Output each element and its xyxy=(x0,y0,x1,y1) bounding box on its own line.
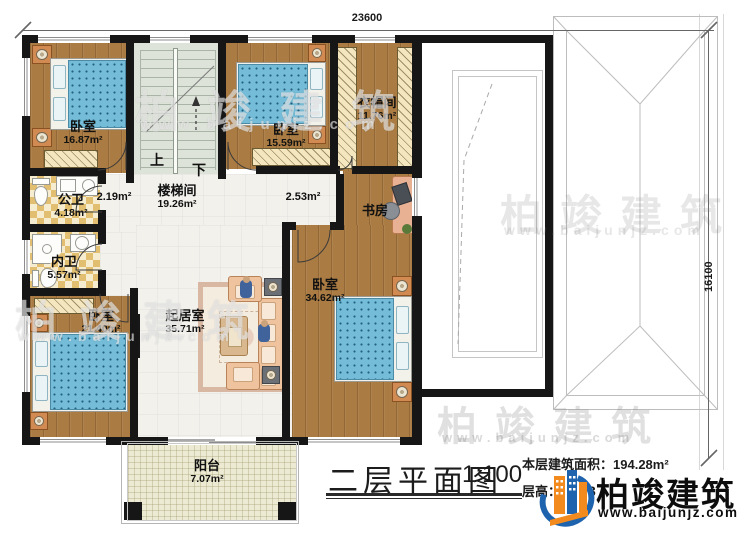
stair-down-label: 下 xyxy=(192,160,206,180)
room-area: 34.62m² xyxy=(305,293,344,305)
stair-up-label: 上 xyxy=(150,150,164,170)
roof-void-outline xyxy=(453,71,543,358)
room-label-bedroom4: 卧室 34.62m² xyxy=(305,278,344,304)
room-label-balcony: 阳台 7.07m² xyxy=(190,459,223,485)
room-area: 4.18m² xyxy=(54,208,87,220)
room-area: 11.76m² xyxy=(357,111,396,123)
room-label-bedroom3: 卧室 21.40m² xyxy=(81,309,120,335)
room-name: 衣帽间 xyxy=(357,96,396,111)
room-area: 19.26m² xyxy=(157,199,196,211)
room-name: 楼梯间 xyxy=(157,184,196,199)
room-label-private-bath: 内卫 5.57m² xyxy=(47,255,80,281)
room-name: 卧室 xyxy=(81,309,120,324)
room-label-bedroom1: 卧室 16.87m² xyxy=(63,120,102,146)
brand-logo-icon xyxy=(538,464,598,532)
dimension-lines xyxy=(15,22,717,466)
room-name: 起居室 xyxy=(165,309,204,324)
stair-break-and-arrow xyxy=(146,66,214,132)
room-name: 卧室 xyxy=(305,278,344,293)
plan-scale: 1:100 xyxy=(462,461,522,489)
dimension-width: 23600 xyxy=(352,12,383,24)
room-label-stairwell: 楼梯间 19.26m² xyxy=(157,184,196,210)
room-name: 内卫 xyxy=(47,255,80,270)
room-area: 2.53m² xyxy=(286,191,321,203)
room-label-hall-right: 2.53m² xyxy=(286,191,321,203)
room-label-bedroom2: 卧室 15.59m² xyxy=(266,123,305,149)
dimension-height: 16100 xyxy=(703,261,715,292)
room-label-living: 起居室 35.71m² xyxy=(165,309,204,335)
room-label-cloakroom: 衣帽间 11.76m² xyxy=(357,96,396,122)
brand-url: www.baijunjz.com xyxy=(598,505,739,520)
extension-lines xyxy=(700,14,724,470)
room-label-hall-left: 2.19m² xyxy=(97,191,132,203)
room-area: 7.07m² xyxy=(190,474,223,486)
room-label-study: 书房 xyxy=(362,204,388,219)
floorplan-canvas: 23600 16100 卧室 16.87m² 卧室 15.59m² 衣帽间 11… xyxy=(0,0,750,534)
room-name: 公卫 xyxy=(54,193,87,208)
room-name: 书房 xyxy=(362,204,388,219)
room-area: 16.87m² xyxy=(63,135,102,147)
room-name: 卧室 xyxy=(63,120,102,135)
roof-outline xyxy=(554,17,718,410)
room-area: 5.57m² xyxy=(47,270,80,282)
room-area: 21.40m² xyxy=(81,324,120,336)
room-label-public-bath: 公卫 4.18m² xyxy=(54,193,87,219)
room-area: 35.71m² xyxy=(165,324,204,336)
room-area: 15.59m² xyxy=(266,138,305,150)
room-name: 阳台 xyxy=(190,459,223,474)
room-area: 2.19m² xyxy=(97,191,132,203)
room-name: 卧室 xyxy=(266,123,305,138)
